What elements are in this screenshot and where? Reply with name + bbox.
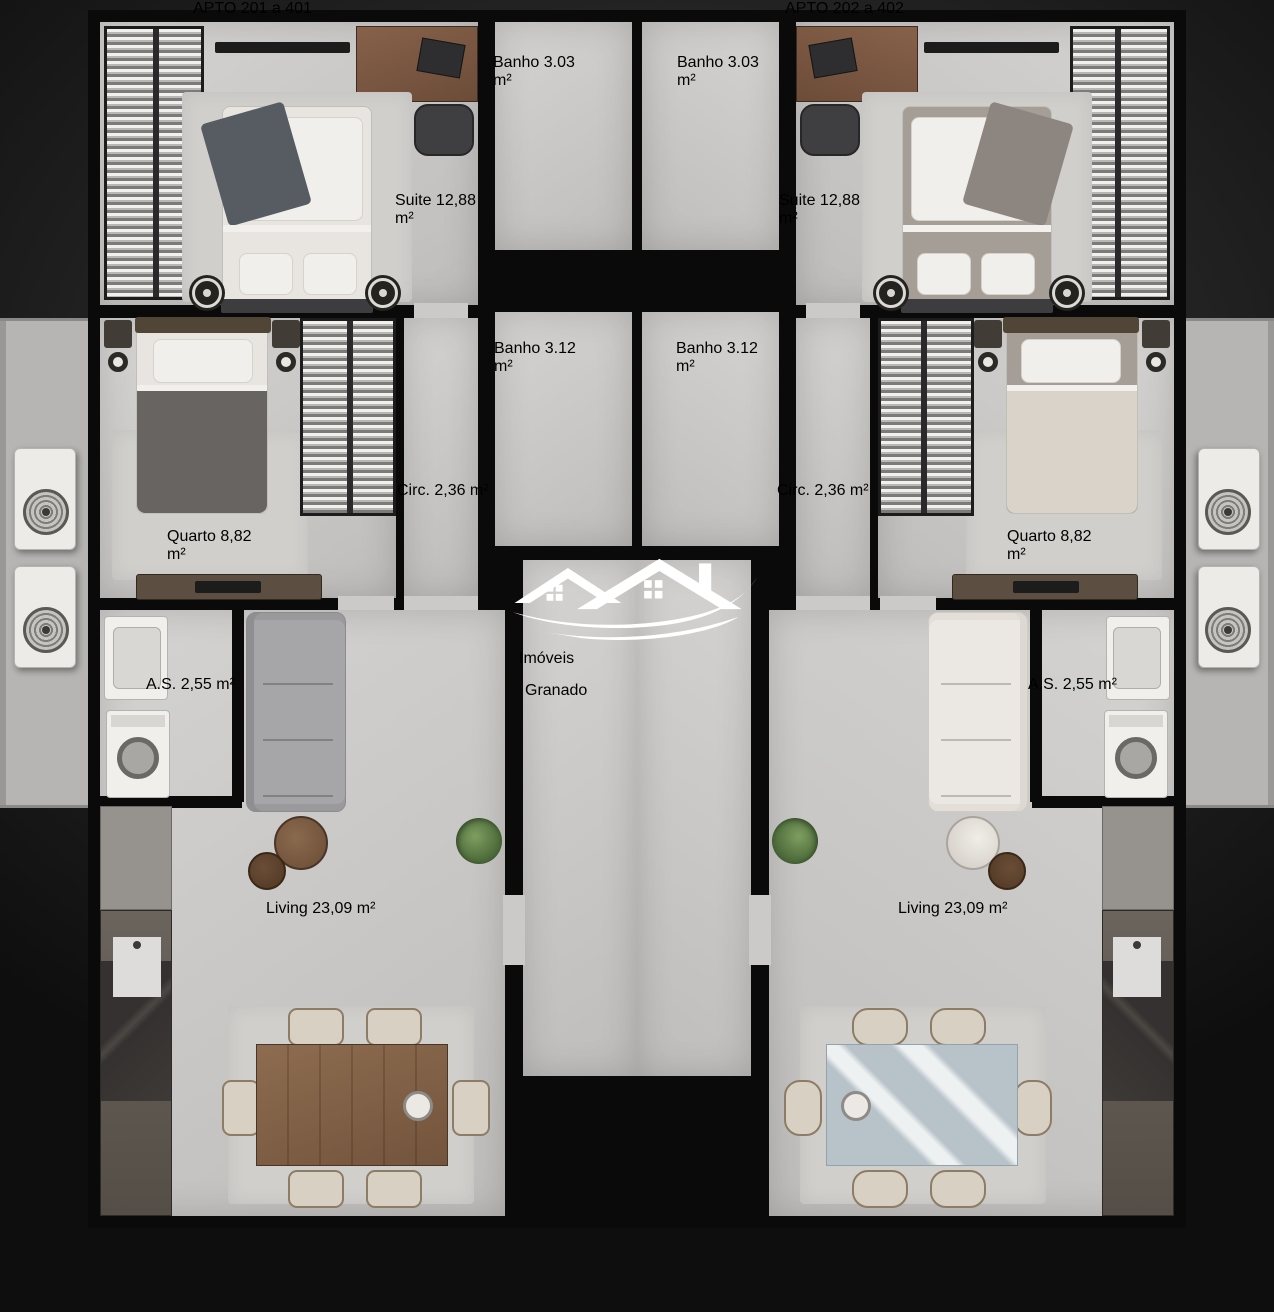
watermark-logo (510, 550, 760, 650)
watermark: Imóveis Granado (455, 550, 819, 760)
watermark-text: Granado (525, 682, 785, 700)
banner-apto-right: APTO 202 a 402 (785, 0, 904, 18)
watermark-text: Imóveis (519, 650, 699, 668)
center-overlay: Imóveis Granado (0, 0, 1274, 1312)
banner-apto-left: APTO 201 a 401 (193, 0, 312, 18)
floor-plan: Suite 12,88 m² Quarto 8,82 m² Circ. 2,36 (0, 0, 1274, 1312)
ramp (636, 1036, 750, 1078)
